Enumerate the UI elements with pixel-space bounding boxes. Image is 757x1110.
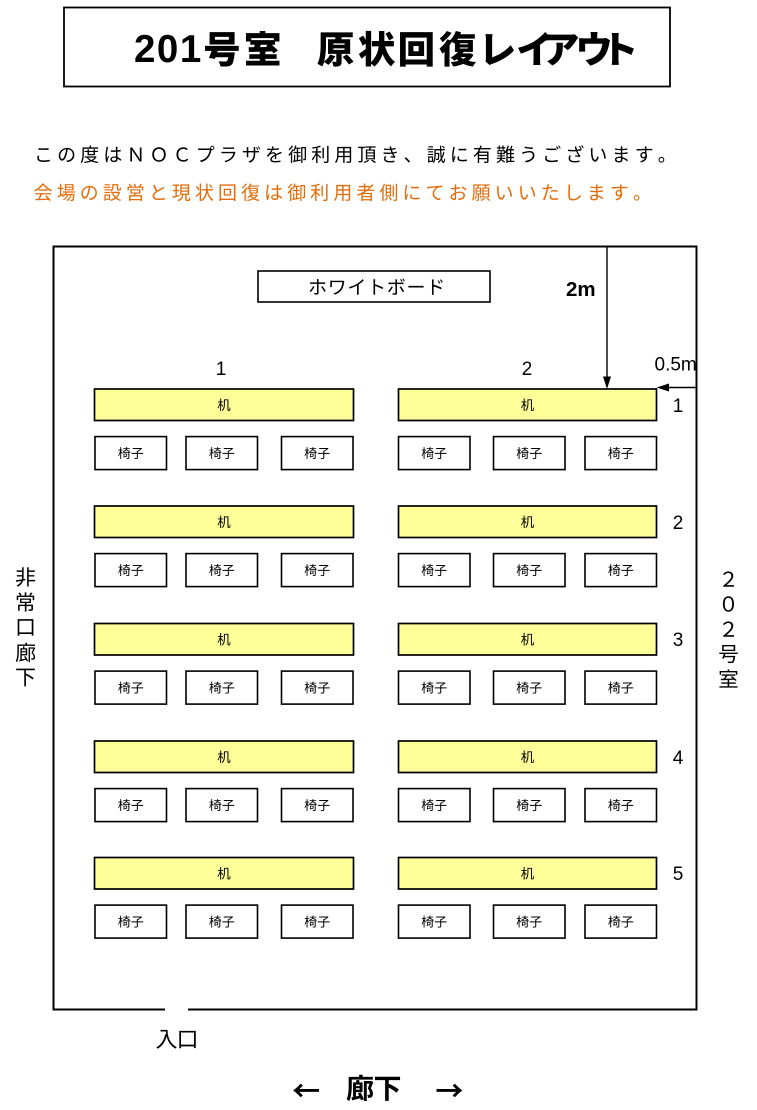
svg-text:2: 2 (673, 513, 684, 534)
svg-text:0.5m: 0.5m (655, 355, 697, 376)
svg-text:1: 1 (216, 359, 227, 380)
svg-text:1: 1 (673, 396, 684, 417)
svg-text:4: 4 (673, 748, 684, 769)
svg-text:5: 5 (673, 864, 684, 885)
svg-text:3: 3 (673, 630, 684, 651)
svg-text:2m: 2m (566, 278, 596, 301)
svg-text:2: 2 (522, 359, 533, 380)
svg-text:201: 201 (134, 28, 203, 71)
